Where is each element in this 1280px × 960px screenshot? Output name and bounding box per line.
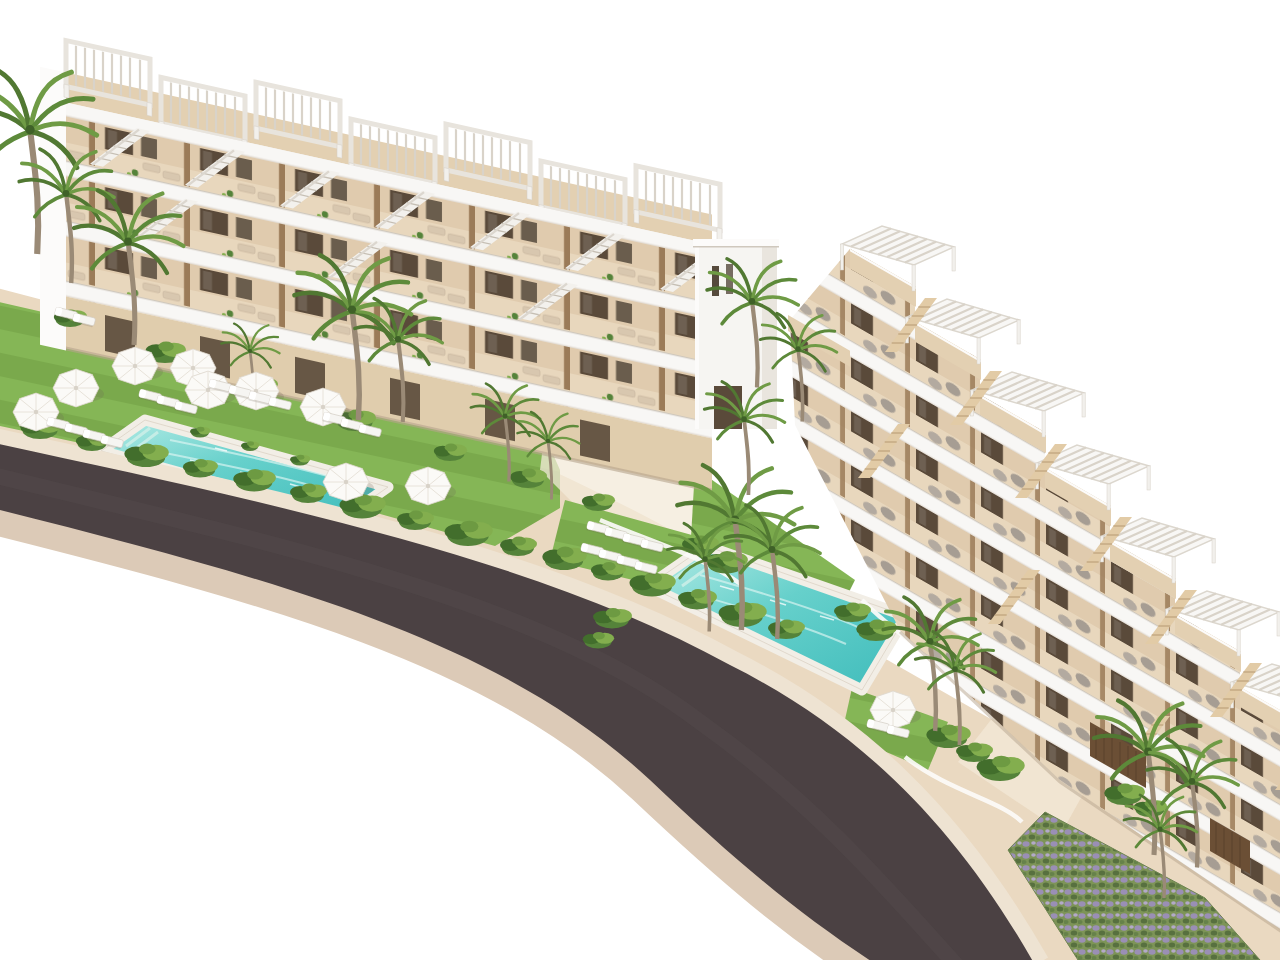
ground-floor-door	[580, 420, 610, 463]
aerial-render	[0, 0, 1280, 960]
render-canvas	[0, 0, 1280, 960]
tower-window	[712, 266, 719, 296]
